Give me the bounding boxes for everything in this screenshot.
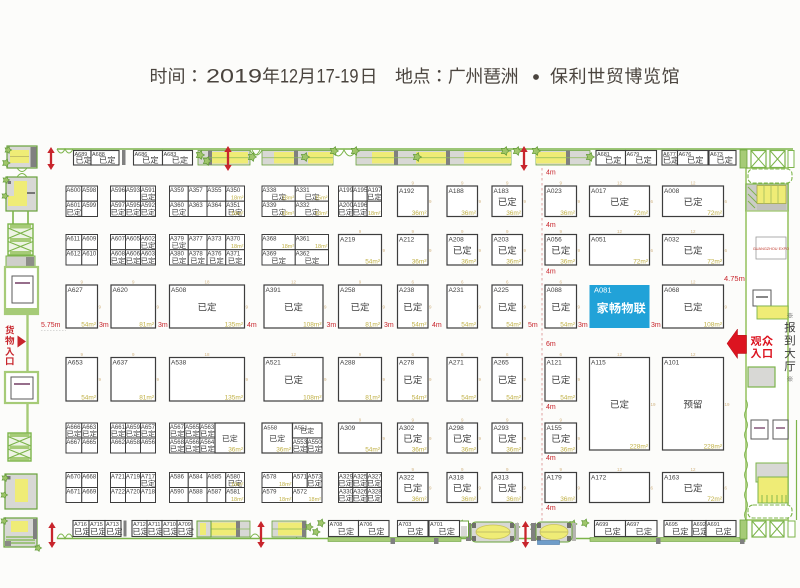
svg-text:A378: A378 — [189, 252, 204, 258]
svg-text:A331: A331 — [296, 188, 311, 194]
svg-text:A325: A325 — [353, 474, 368, 480]
svg-text:A659: A659 — [126, 425, 141, 431]
svg-text:3m: 3m — [384, 322, 394, 329]
svg-text:A350: A350 — [226, 188, 241, 194]
svg-text:A605: A605 — [126, 236, 141, 242]
svg-text:A721: A721 — [111, 474, 126, 480]
svg-text:A188: A188 — [449, 188, 465, 195]
svg-text:A271: A271 — [449, 360, 465, 367]
svg-text:4m: 4m — [546, 222, 556, 229]
svg-text:A669: A669 — [82, 489, 97, 495]
svg-text:54m²: 54m² — [365, 447, 381, 454]
svg-text:A318: A318 — [449, 475, 465, 482]
svg-text:81m²: 81m² — [365, 395, 381, 402]
svg-text:A602: A602 — [141, 236, 156, 242]
svg-text:54m²: 54m² — [412, 322, 428, 329]
svg-text:A609: A609 — [82, 236, 97, 242]
svg-text:A563: A563 — [200, 425, 215, 431]
svg-text:12: 12 — [291, 352, 297, 357]
svg-text:36m²: 36m² — [560, 447, 576, 454]
svg-text:A601: A601 — [66, 203, 81, 209]
svg-text:A703: A703 — [399, 522, 412, 528]
svg-text:A313: A313 — [494, 475, 510, 482]
svg-text:A203: A203 — [494, 237, 510, 244]
svg-text:A538: A538 — [171, 360, 187, 367]
svg-text:A607: A607 — [111, 236, 126, 242]
svg-text:A355: A355 — [207, 188, 222, 194]
svg-text:36m²: 36m² — [560, 210, 576, 217]
svg-text:4m: 4m — [546, 269, 556, 276]
svg-text:4m: 4m — [432, 322, 442, 329]
svg-text:A610: A610 — [82, 252, 97, 258]
svg-text:12: 12 — [291, 280, 297, 285]
svg-text:A597: A597 — [111, 203, 126, 209]
svg-text:A598: A598 — [82, 188, 97, 194]
svg-text:A587: A587 — [207, 489, 222, 495]
svg-text:A051: A051 — [591, 237, 607, 244]
svg-text:A212: A212 — [399, 237, 415, 244]
svg-text:A371: A371 — [226, 252, 241, 258]
svg-text:A115: A115 — [591, 360, 606, 367]
svg-text:A101: A101 — [664, 360, 680, 367]
svg-text:108m²: 108m² — [303, 395, 322, 402]
svg-text:4m: 4m — [546, 505, 556, 512]
svg-text:A715: A715 — [90, 522, 103, 528]
svg-text:81m²: 81m² — [139, 395, 155, 402]
svg-text:A599: A599 — [82, 203, 97, 209]
svg-text:A591: A591 — [141, 188, 156, 194]
svg-text:A699: A699 — [596, 522, 609, 528]
svg-text:A584: A584 — [189, 474, 204, 480]
svg-text:72m²: 72m² — [707, 210, 723, 217]
svg-text:54m²: 54m² — [506, 395, 522, 402]
svg-text:A658: A658 — [126, 440, 141, 446]
svg-text:A288: A288 — [340, 360, 356, 367]
svg-text:A662: A662 — [111, 440, 126, 446]
svg-text:A380: A380 — [170, 252, 185, 258]
svg-text:A329: A329 — [339, 474, 354, 480]
svg-text:12: 12 — [690, 229, 696, 234]
svg-text:A590: A590 — [170, 489, 185, 495]
svg-text:A362: A362 — [296, 252, 311, 258]
svg-text:5m: 5m — [528, 322, 538, 329]
svg-text:A670: A670 — [66, 474, 81, 480]
svg-text:54m²: 54m² — [412, 395, 428, 402]
svg-text:A565: A565 — [185, 425, 200, 431]
svg-text:A706: A706 — [360, 522, 373, 528]
svg-text:A596: A596 — [111, 188, 126, 194]
svg-text:72m²: 72m² — [707, 496, 723, 503]
svg-text:A017: A017 — [591, 188, 607, 195]
svg-text:A568: A568 — [170, 440, 185, 446]
svg-text:54m²: 54m² — [560, 395, 576, 402]
svg-text:A195: A195 — [353, 188, 368, 194]
svg-text:A578: A578 — [262, 474, 277, 480]
svg-text:A691: A691 — [707, 522, 720, 528]
svg-text:A377: A377 — [189, 236, 204, 242]
svg-text:A661: A661 — [111, 425, 126, 431]
svg-text:A521: A521 — [266, 360, 282, 367]
svg-text:A665: A665 — [82, 440, 97, 446]
svg-text:A208: A208 — [449, 237, 465, 244]
svg-text:4m: 4m — [546, 455, 556, 462]
svg-text:A360: A360 — [170, 203, 185, 209]
svg-text:A608: A608 — [111, 252, 126, 258]
svg-text:A373: A373 — [207, 236, 222, 242]
svg-text:18: 18 — [204, 280, 210, 285]
svg-text:GUANGZHOU EXPO: GUANGZHOU EXPO — [753, 247, 789, 251]
svg-text:A712: A712 — [133, 522, 146, 528]
svg-text:A653: A653 — [68, 360, 84, 367]
svg-text:81m²: 81m² — [365, 322, 381, 329]
svg-text:12: 12 — [617, 229, 623, 234]
svg-text:A368: A368 — [262, 236, 277, 242]
svg-text:A391: A391 — [266, 287, 282, 294]
svg-text:A056: A056 — [547, 237, 563, 244]
svg-text:A332: A332 — [296, 203, 311, 209]
svg-text:A197: A197 — [368, 188, 383, 194]
svg-text:12: 12 — [690, 181, 696, 186]
svg-text:A379: A379 — [170, 236, 185, 242]
svg-text:A718: A718 — [141, 489, 156, 495]
svg-text:A581: A581 — [226, 489, 241, 495]
svg-text:A361: A361 — [296, 236, 311, 242]
svg-text:A200: A200 — [339, 203, 354, 209]
svg-text:A351: A351 — [226, 203, 241, 209]
svg-text:54m²: 54m² — [81, 395, 97, 402]
svg-text:A600: A600 — [66, 188, 81, 194]
svg-text:A579: A579 — [262, 489, 277, 495]
svg-text:18m²: 18m² — [231, 211, 244, 217]
svg-text:4m: 4m — [546, 404, 556, 411]
svg-text:12: 12 — [280, 67, 298, 88]
svg-text:36m²: 36m² — [560, 496, 576, 503]
svg-text:36m²: 36m² — [461, 496, 477, 503]
svg-text:36m²: 36m² — [506, 496, 522, 503]
svg-text:3m: 3m — [99, 322, 109, 329]
svg-text:A192: A192 — [399, 188, 415, 195]
svg-text:18m²: 18m² — [279, 497, 292, 503]
svg-text:A199: A199 — [339, 188, 354, 194]
svg-text:54m²: 54m² — [461, 322, 477, 329]
svg-text:36m²: 36m² — [412, 259, 428, 266]
svg-text:36m²: 36m² — [560, 259, 576, 266]
svg-text:54m²: 54m² — [560, 322, 576, 329]
svg-text:12: 12 — [690, 280, 696, 285]
svg-text:135m²: 135m² — [225, 395, 244, 402]
svg-text:A627: A627 — [68, 287, 84, 294]
svg-text:36m²: 36m² — [412, 447, 428, 454]
svg-text:A592: A592 — [141, 203, 156, 209]
svg-text:A293: A293 — [494, 425, 510, 432]
svg-text:12: 12 — [690, 352, 696, 357]
svg-text:A359: A359 — [170, 188, 185, 194]
svg-text:72m²: 72m² — [633, 210, 649, 217]
svg-text:A330: A330 — [339, 489, 354, 495]
svg-text:A179: A179 — [547, 475, 563, 482]
svg-text:18m²: 18m² — [368, 211, 381, 217]
svg-text:A585: A585 — [207, 474, 222, 480]
svg-text:3m: 3m — [651, 322, 661, 329]
svg-text:108m²: 108m² — [303, 322, 322, 329]
svg-text:18m²: 18m² — [282, 211, 295, 217]
svg-text:A338: A338 — [262, 188, 277, 194]
svg-text:A588: A588 — [189, 489, 204, 495]
svg-text:36m²: 36m² — [461, 210, 477, 217]
svg-text:36m²: 36m² — [461, 447, 477, 454]
svg-text:A370: A370 — [226, 236, 241, 242]
svg-text:A322: A322 — [399, 475, 415, 482]
svg-text:A580: A580 — [226, 474, 241, 480]
svg-text:A032: A032 — [664, 237, 680, 244]
svg-text:54m²: 54m² — [506, 322, 522, 329]
svg-text:A553: A553 — [293, 440, 308, 446]
svg-text:A278: A278 — [399, 360, 415, 367]
svg-text:18m²: 18m² — [315, 211, 328, 217]
svg-text:A586: A586 — [170, 474, 185, 480]
svg-text:A666: A666 — [66, 425, 81, 431]
svg-text:36m²: 36m² — [228, 447, 244, 454]
svg-text:A603: A603 — [141, 252, 156, 258]
svg-text:A566: A566 — [185, 440, 200, 446]
svg-text:A656: A656 — [141, 440, 156, 446]
svg-text:A573: A573 — [308, 474, 323, 480]
svg-text:A302: A302 — [399, 425, 415, 432]
svg-text:A231: A231 — [449, 287, 465, 294]
svg-text:3m: 3m — [158, 322, 168, 329]
svg-text:54m²: 54m² — [81, 322, 97, 329]
svg-text:A326: A326 — [353, 489, 368, 495]
svg-text:A225: A225 — [494, 287, 510, 294]
svg-text:A717: A717 — [141, 474, 156, 480]
svg-text:A657: A657 — [141, 425, 156, 431]
svg-text:A172: A172 — [591, 475, 607, 482]
svg-text:A068: A068 — [664, 287, 680, 294]
svg-text:3m: 3m — [578, 322, 588, 329]
svg-text:A709: A709 — [178, 522, 191, 528]
svg-text:A612: A612 — [66, 252, 81, 258]
svg-text:A327: A327 — [368, 474, 383, 480]
svg-text:18: 18 — [204, 352, 210, 357]
svg-text:A697: A697 — [627, 522, 640, 528]
svg-text:A298: A298 — [449, 425, 465, 432]
svg-text:A088: A088 — [547, 287, 563, 294]
svg-text:36m²: 36m² — [506, 210, 522, 217]
svg-text:5.75m: 5.75m — [41, 322, 61, 329]
svg-text:A558: A558 — [264, 425, 278, 431]
svg-text:72m²: 72m² — [707, 259, 723, 266]
svg-text:A364: A364 — [207, 203, 222, 209]
svg-text:A023: A023 — [547, 188, 563, 195]
svg-text:A716: A716 — [74, 522, 87, 528]
svg-text:A258: A258 — [340, 287, 356, 294]
svg-text:2019: 2019 — [206, 67, 262, 88]
svg-text:4.75m: 4.75m — [724, 274, 745, 283]
svg-text:A265: A265 — [494, 360, 510, 367]
svg-text:12: 12 — [617, 352, 623, 357]
svg-text:6m: 6m — [546, 341, 556, 348]
svg-text:A567: A567 — [170, 425, 185, 431]
svg-text:A710: A710 — [163, 522, 176, 528]
svg-text:A711: A711 — [148, 522, 160, 528]
svg-text:A328: A328 — [368, 489, 383, 495]
svg-text:A671: A671 — [66, 489, 81, 495]
svg-text:A611: A611 — [66, 236, 80, 242]
svg-text:A309: A309 — [340, 425, 356, 432]
svg-text:A155: A155 — [547, 425, 563, 432]
svg-text:19: 19 — [725, 402, 731, 407]
svg-text:A667: A667 — [66, 440, 81, 446]
svg-text:A121: A121 — [547, 360, 563, 367]
svg-text:18m²: 18m² — [308, 497, 321, 503]
svg-text:A363: A363 — [189, 203, 204, 209]
svg-text:A720: A720 — [126, 489, 141, 495]
svg-text:A369: A369 — [262, 252, 277, 258]
svg-text:A572: A572 — [293, 489, 308, 495]
svg-text:A571: A571 — [293, 474, 308, 480]
svg-text:54m²: 54m² — [461, 395, 477, 402]
svg-text:54m²: 54m² — [365, 259, 381, 266]
svg-text:A595: A595 — [126, 203, 141, 209]
svg-text:A508: A508 — [171, 287, 187, 294]
svg-text:36m²: 36m² — [506, 259, 522, 266]
svg-text:36m²: 36m² — [276, 447, 292, 454]
svg-text:A008: A008 — [664, 188, 680, 195]
svg-text:12: 12 — [617, 467, 623, 472]
svg-text:A183: A183 — [494, 188, 510, 195]
svg-text:A196: A196 — [353, 203, 368, 209]
svg-text:36m²: 36m² — [461, 259, 477, 266]
svg-text:A620: A620 — [113, 287, 129, 294]
svg-text:A081: A081 — [594, 286, 612, 295]
svg-text:36m²: 36m² — [506, 447, 522, 454]
svg-text:108m²: 108m² — [704, 322, 723, 329]
svg-text:3m: 3m — [327, 322, 337, 329]
svg-text:A708: A708 — [330, 522, 343, 528]
svg-text:A695: A695 — [665, 522, 678, 528]
svg-text:A564: A564 — [200, 440, 215, 446]
svg-text:A550: A550 — [308, 440, 323, 446]
svg-text:A719: A719 — [126, 474, 141, 480]
svg-text:A238: A238 — [399, 287, 415, 294]
svg-text:A692: A692 — [693, 522, 706, 528]
svg-text:12: 12 — [617, 181, 623, 186]
svg-text:A722: A722 — [111, 489, 126, 495]
svg-text:4m: 4m — [546, 170, 556, 177]
svg-text:36m²: 36m² — [412, 496, 428, 503]
svg-text:18m²: 18m² — [231, 497, 244, 503]
svg-text:81m²: 81m² — [139, 322, 155, 329]
svg-text:228m²: 228m² — [630, 444, 649, 451]
svg-text:72m²: 72m² — [633, 259, 649, 266]
svg-text:A668: A668 — [82, 474, 97, 480]
svg-text:A339: A339 — [262, 203, 277, 209]
svg-text:36m²: 36m² — [412, 210, 428, 217]
svg-text:19: 19 — [651, 402, 657, 407]
svg-text:A376: A376 — [207, 252, 222, 258]
svg-text:A219: A219 — [340, 237, 356, 244]
svg-text:A713: A713 — [106, 522, 119, 528]
svg-text:4m: 4m — [247, 322, 257, 329]
svg-text:12: 12 — [690, 467, 696, 472]
svg-text:A357: A357 — [189, 188, 204, 194]
svg-text:17-19: 17-19 — [317, 67, 359, 88]
svg-text:228m²: 228m² — [704, 444, 723, 451]
svg-text:A606: A606 — [126, 252, 141, 258]
svg-text:A663: A663 — [82, 425, 97, 431]
svg-text:A701: A701 — [430, 522, 443, 528]
svg-text:A593: A593 — [126, 188, 141, 194]
svg-text:A637: A637 — [113, 360, 129, 367]
svg-text:135m²: 135m² — [225, 322, 244, 329]
svg-text:A163: A163 — [664, 475, 680, 482]
